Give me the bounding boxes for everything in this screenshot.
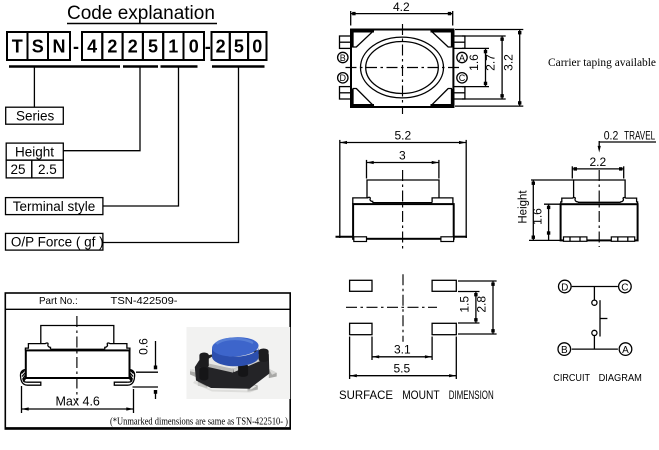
svg-text:2: 2 bbox=[107, 37, 117, 57]
svg-text:DIMENSION: DIMENSION bbox=[449, 388, 494, 402]
svg-text:5: 5 bbox=[234, 37, 244, 57]
svg-text:B: B bbox=[561, 345, 568, 356]
svg-text:O/P Force ( gf ): O/P Force ( gf ) bbox=[11, 235, 104, 250]
svg-text:2.2: 2.2 bbox=[590, 155, 607, 169]
svg-text:-: - bbox=[205, 37, 211, 57]
svg-text:3: 3 bbox=[399, 149, 406, 163]
svg-text:2: 2 bbox=[216, 37, 226, 57]
svg-text:0: 0 bbox=[252, 37, 262, 57]
svg-text:Max: Max bbox=[56, 395, 80, 409]
svg-text:1.5: 1.5 bbox=[457, 296, 471, 313]
svg-text:C: C bbox=[459, 73, 466, 83]
svg-text:5.5: 5.5 bbox=[394, 361, 411, 375]
svg-text:B: B bbox=[340, 53, 346, 63]
svg-text:Height: Height bbox=[15, 145, 54, 160]
svg-text:0.2: 0.2 bbox=[604, 130, 619, 142]
svg-text:3.2: 3.2 bbox=[501, 54, 515, 71]
svg-text:N: N bbox=[53, 37, 66, 57]
svg-text:D: D bbox=[561, 282, 568, 293]
svg-text:0: 0 bbox=[189, 37, 199, 57]
svg-text:4.6: 4.6 bbox=[83, 395, 100, 409]
svg-text:T: T bbox=[12, 37, 23, 57]
svg-text:-: - bbox=[73, 37, 79, 57]
svg-text:1.6: 1.6 bbox=[530, 208, 544, 225]
svg-text:Code explanation: Code explanation bbox=[67, 3, 215, 24]
svg-text:TRAVEL: TRAVEL bbox=[624, 130, 656, 142]
svg-text:DIAGRAM: DIAGRAM bbox=[599, 372, 642, 384]
svg-text:Terminal style: Terminal style bbox=[13, 199, 96, 214]
svg-text:0.6: 0.6 bbox=[137, 338, 151, 355]
svg-text:1.6: 1.6 bbox=[467, 54, 481, 71]
svg-text:A: A bbox=[459, 53, 465, 63]
svg-text:Carrier taping available: Carrier taping available bbox=[548, 57, 656, 69]
svg-text:2.7: 2.7 bbox=[484, 54, 498, 71]
svg-text:MOUNT: MOUNT bbox=[402, 388, 440, 402]
svg-text:4.2: 4.2 bbox=[393, 0, 410, 14]
svg-text:5.2: 5.2 bbox=[395, 129, 412, 143]
svg-text:CIRCUIT: CIRCUIT bbox=[553, 372, 590, 384]
svg-text:2.8: 2.8 bbox=[475, 296, 489, 313]
svg-text:SURFACE: SURFACE bbox=[339, 388, 393, 402]
svg-text:2.5: 2.5 bbox=[38, 162, 57, 177]
svg-text:1: 1 bbox=[168, 37, 178, 57]
svg-text:Series: Series bbox=[16, 109, 55, 124]
svg-text:(*Unmarked dimensions are same: (*Unmarked dimensions are same as TSN-42… bbox=[110, 417, 288, 428]
svg-text:A: A bbox=[622, 345, 629, 356]
svg-text:25: 25 bbox=[11, 162, 26, 177]
svg-text:5: 5 bbox=[148, 37, 158, 57]
svg-text:D: D bbox=[340, 73, 347, 83]
svg-text:TSN-422509-: TSN-422509- bbox=[111, 295, 179, 307]
svg-text:2: 2 bbox=[128, 37, 138, 57]
svg-text:3.1: 3.1 bbox=[394, 343, 411, 357]
svg-text:Part No.:: Part No.: bbox=[39, 295, 78, 307]
svg-text:S: S bbox=[32, 37, 44, 57]
svg-text:C: C bbox=[621, 282, 628, 293]
svg-text:Height: Height bbox=[518, 190, 530, 224]
svg-text:4: 4 bbox=[87, 37, 97, 57]
